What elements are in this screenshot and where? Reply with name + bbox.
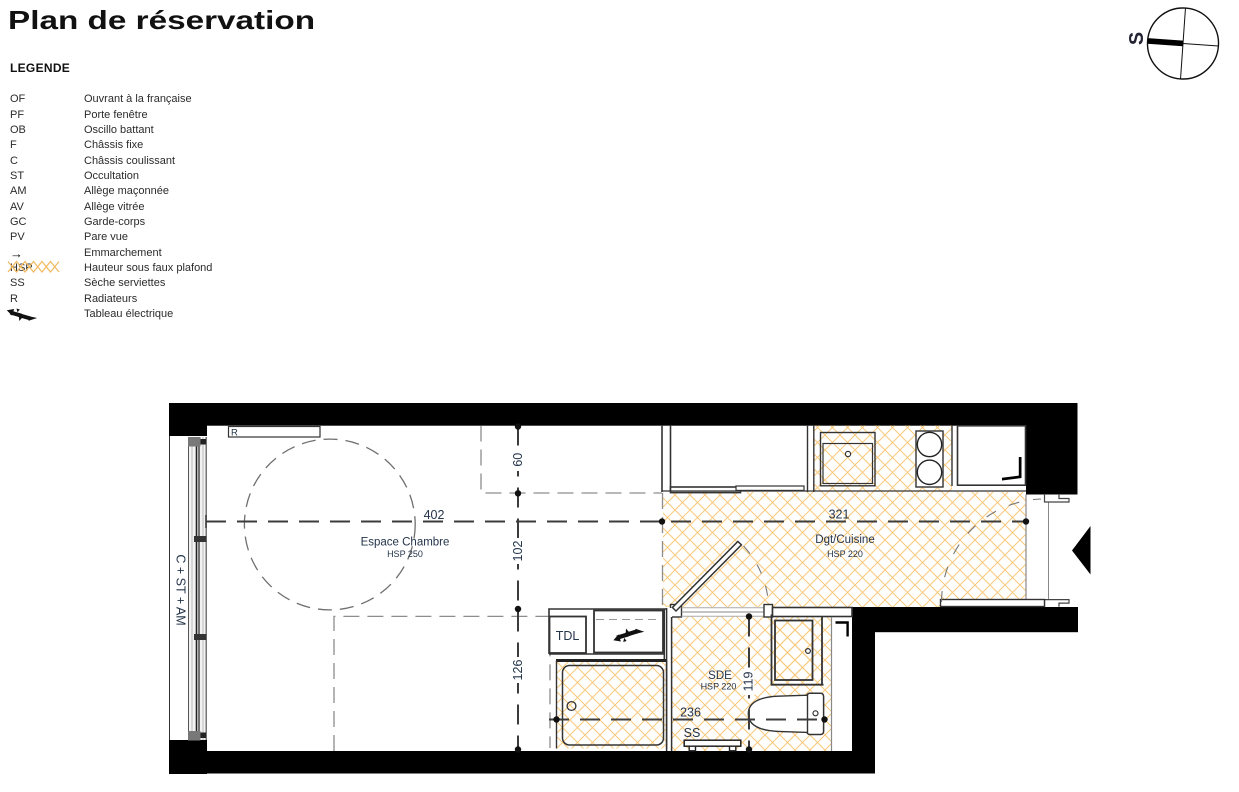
svg-text:S: S [1126, 32, 1148, 45]
svg-text:HSP 250: HSP 250 [387, 549, 423, 559]
svg-text:236: 236 [680, 706, 701, 720]
svg-text:Espace Chambre: Espace Chambre [361, 537, 450, 549]
svg-text:119: 119 [742, 671, 756, 691]
svg-text:402: 402 [424, 508, 445, 522]
svg-text:HSP 220: HSP 220 [701, 682, 737, 692]
svg-text:C + ST + AM: C + ST + AM [174, 554, 188, 625]
svg-text:60: 60 [511, 453, 525, 467]
svg-text:HSP 220: HSP 220 [827, 549, 863, 559]
svg-text:TDL: TDL [556, 629, 580, 643]
svg-text:Dgt/Cuisine: Dgt/Cuisine [815, 534, 874, 546]
svg-text:102: 102 [511, 541, 525, 562]
svg-text:R: R [231, 428, 238, 439]
svg-text:126: 126 [511, 660, 525, 681]
svg-text:SDE: SDE [708, 670, 732, 682]
svg-text:321: 321 [829, 508, 850, 522]
svg-text:SS: SS [684, 726, 701, 740]
